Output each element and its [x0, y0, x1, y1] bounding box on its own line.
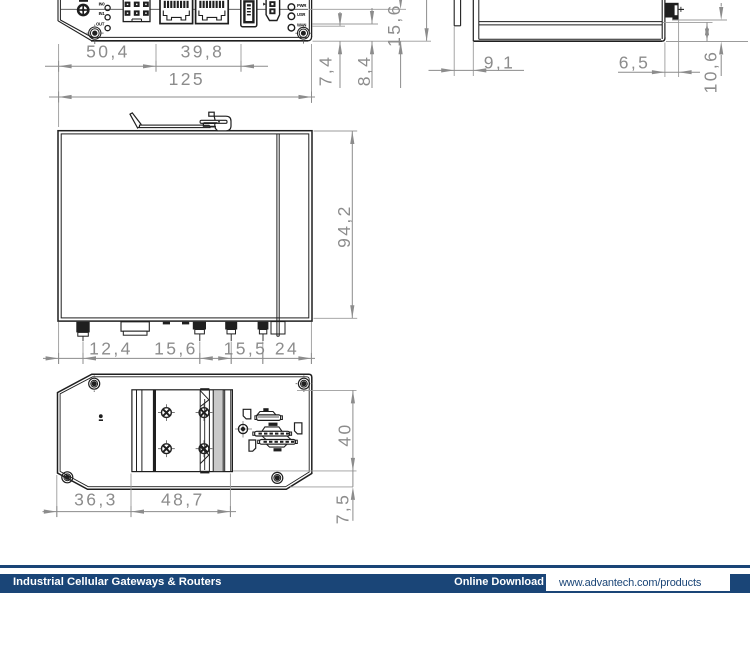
svg-text:7,4: 7,4	[316, 55, 336, 87]
svg-text:7,5: 7,5	[333, 493, 353, 525]
svg-text:PWR: PWR	[297, 3, 306, 8]
svg-text:24: 24	[275, 339, 299, 359]
svg-text:39,8: 39,8	[181, 42, 225, 62]
svg-text:6,5: 6,5	[619, 53, 651, 73]
svg-text:IN1: IN1	[99, 11, 106, 16]
svg-text:10,6: 10,6	[701, 50, 721, 94]
svg-text:125: 125	[169, 69, 205, 89]
svg-text:48,7: 48,7	[161, 490, 205, 510]
svg-text:36,3: 36,3	[74, 490, 118, 510]
svg-text:50,4: 50,4	[86, 42, 130, 62]
svg-text:IN0: IN0	[99, 1, 106, 6]
svg-text:WAN: WAN	[297, 23, 306, 28]
svg-text:15,5: 15,5	[224, 339, 268, 359]
svg-text:15,6: 15,6	[154, 339, 198, 359]
svg-text:40: 40	[334, 422, 354, 446]
svg-text:8,4: 8,4	[354, 55, 374, 87]
svg-text:9,1: 9,1	[484, 53, 516, 73]
svg-text:12,4: 12,4	[89, 339, 133, 359]
svg-text:15,6: 15,6	[384, 3, 404, 47]
svg-text:USR: USR	[297, 12, 305, 17]
svg-text:OUT: OUT	[96, 21, 105, 26]
svg-text:94,2: 94,2	[334, 204, 354, 248]
